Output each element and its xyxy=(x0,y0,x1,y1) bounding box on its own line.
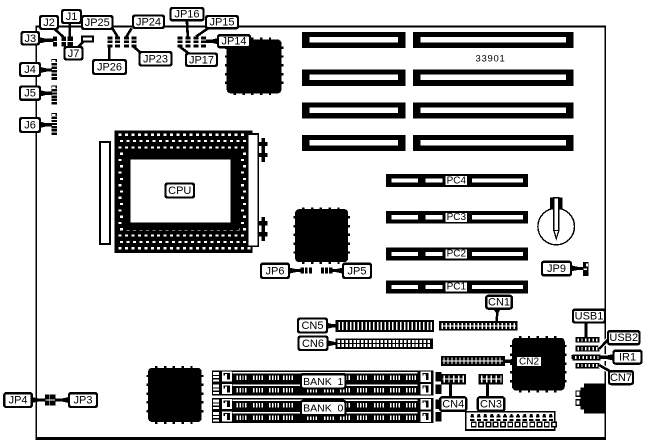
svg-text:USB2: USB2 xyxy=(609,332,638,344)
svg-text:PC4: PC4 xyxy=(447,175,467,186)
svg-text:J3: J3 xyxy=(24,33,36,45)
svg-text:JP3: JP3 xyxy=(74,395,93,407)
svg-text:JP14: JP14 xyxy=(221,36,246,48)
svg-text:CPU: CPU xyxy=(168,185,191,197)
svg-text:CN7: CN7 xyxy=(610,372,632,384)
svg-text:CN5: CN5 xyxy=(301,320,323,332)
svg-text:JP17: JP17 xyxy=(189,54,214,66)
svg-text:CN2: CN2 xyxy=(519,357,539,368)
svg-text:IR1: IR1 xyxy=(619,352,636,364)
svg-text:JP16: JP16 xyxy=(174,9,199,21)
svg-text:CN1: CN1 xyxy=(488,297,510,309)
svg-text:J1: J1 xyxy=(66,11,78,23)
svg-text:JP15: JP15 xyxy=(209,17,234,29)
svg-text:33901: 33901 xyxy=(476,53,506,64)
svg-text:USB1: USB1 xyxy=(575,311,604,323)
svg-text:PC3: PC3 xyxy=(447,212,467,223)
svg-text:BANK 1: BANK 1 xyxy=(303,376,343,388)
svg-text:J4: J4 xyxy=(24,64,36,76)
svg-text:CN6: CN6 xyxy=(302,338,324,350)
svg-text:JP4: JP4 xyxy=(9,395,28,407)
svg-text:JP24: JP24 xyxy=(136,16,161,28)
svg-text:JP25: JP25 xyxy=(85,17,110,29)
svg-text:PC1: PC1 xyxy=(447,282,467,293)
svg-text:CN4: CN4 xyxy=(442,399,464,411)
svg-text:J6: J6 xyxy=(24,120,36,132)
svg-text:J7: J7 xyxy=(68,48,80,60)
svg-text:JP9: JP9 xyxy=(547,263,566,275)
svg-text:JP6: JP6 xyxy=(266,265,285,277)
svg-text:JP26: JP26 xyxy=(97,62,122,74)
svg-text:J5: J5 xyxy=(24,88,36,100)
svg-text:JP5: JP5 xyxy=(348,265,367,277)
svg-text:J2: J2 xyxy=(43,17,55,29)
svg-text:BANK 0: BANK 0 xyxy=(303,403,343,415)
svg-text:JP23: JP23 xyxy=(143,53,168,65)
svg-text:PC2: PC2 xyxy=(447,249,467,260)
svg-text:CN3: CN3 xyxy=(480,399,502,411)
